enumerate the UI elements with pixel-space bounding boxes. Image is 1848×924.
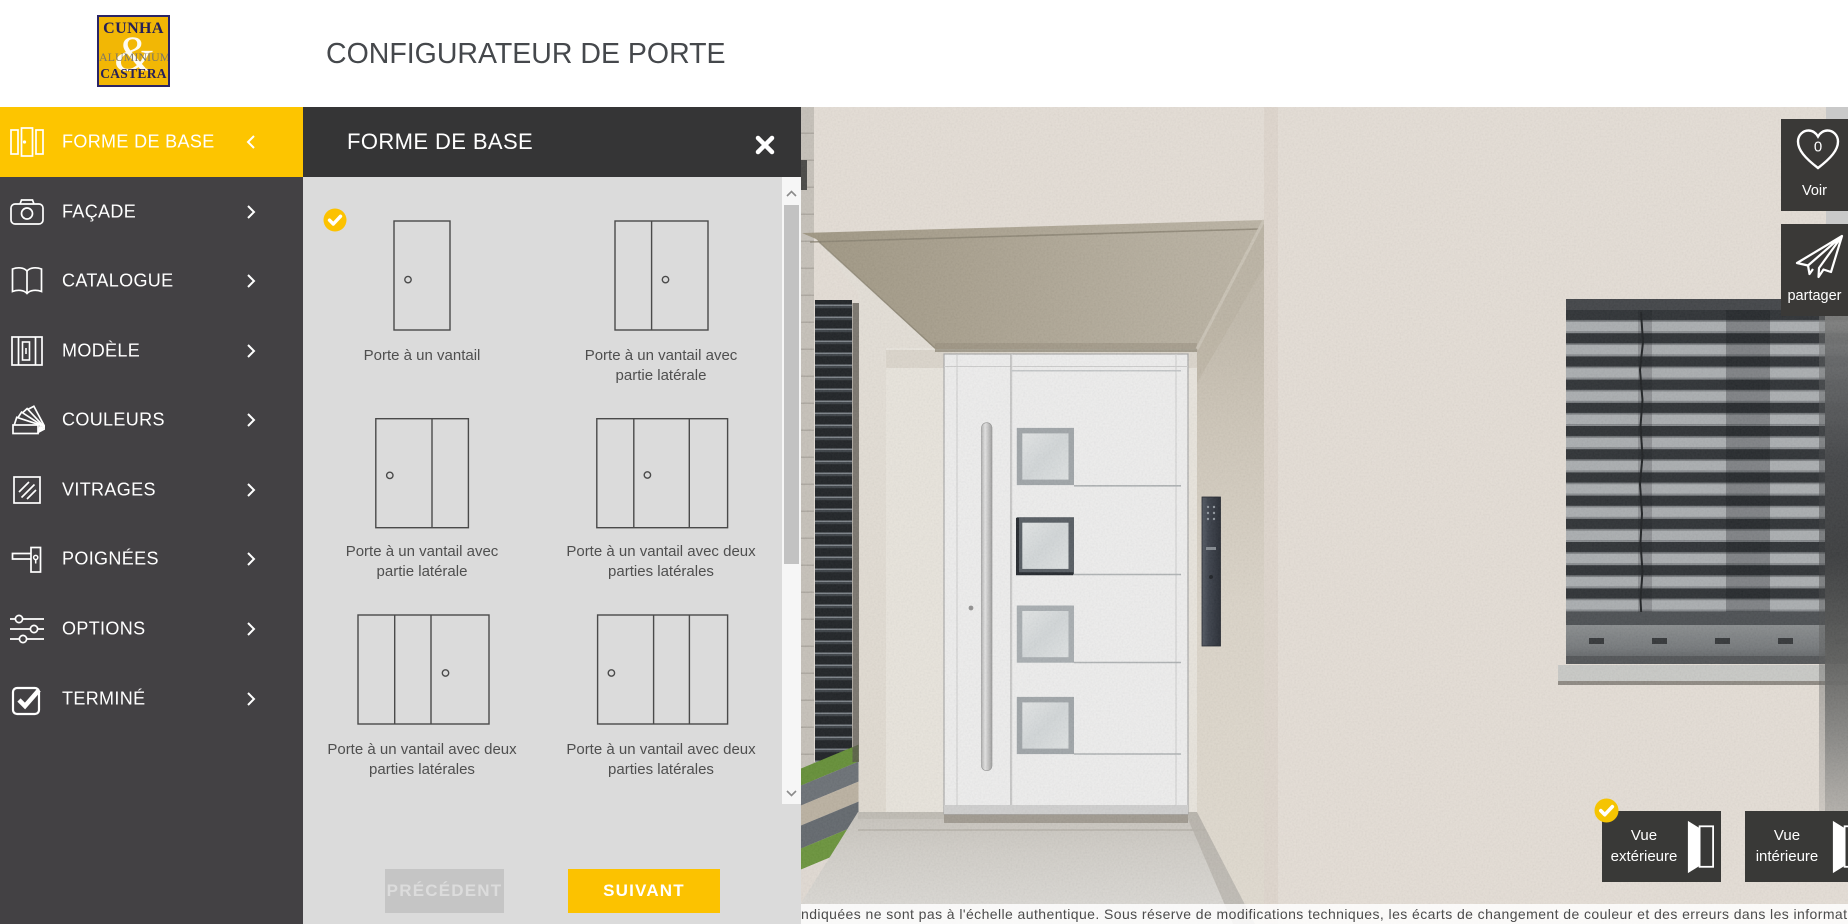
svg-text:0: 0 [1814,139,1822,156]
